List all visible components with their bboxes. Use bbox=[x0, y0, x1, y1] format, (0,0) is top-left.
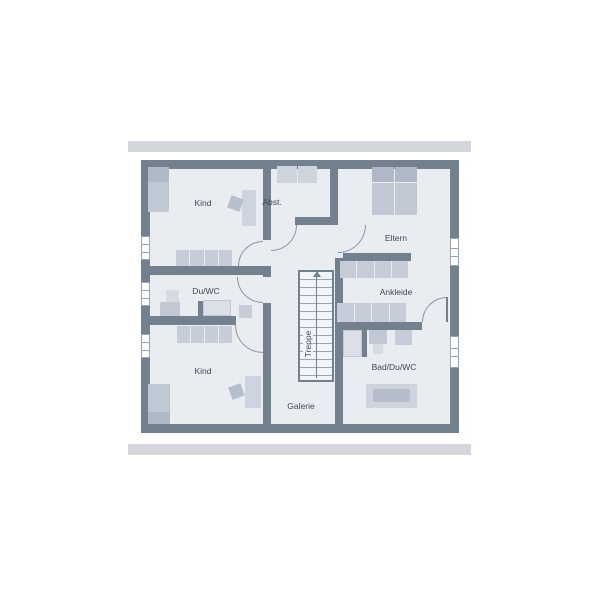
room-label-kind-top: Kind bbox=[194, 198, 211, 208]
bed-mattress bbox=[395, 183, 417, 215]
wall bbox=[335, 258, 343, 424]
wall bbox=[343, 253, 411, 261]
window bbox=[141, 334, 150, 358]
washbasin-pedestal bbox=[166, 290, 179, 302]
window-panes bbox=[142, 290, 149, 299]
bed bbox=[148, 182, 169, 212]
shower-partition bbox=[362, 330, 367, 357]
shelf bbox=[277, 166, 317, 183]
desk bbox=[242, 190, 256, 226]
window bbox=[450, 336, 459, 368]
room-label-ankleide: Ankleide bbox=[380, 287, 413, 297]
room-label-bad-du-wc: Bad/Du/WC bbox=[372, 362, 417, 372]
bathtub-inner bbox=[373, 389, 410, 402]
roof-eave-bottom bbox=[128, 444, 471, 455]
wardrobe-cell bbox=[390, 303, 407, 322]
wall bbox=[263, 303, 271, 316]
shower bbox=[203, 300, 231, 316]
room-label-treppe: Treppe bbox=[303, 330, 313, 359]
double-bed bbox=[372, 167, 417, 215]
wall bbox=[335, 322, 422, 330]
wardrobe-cell bbox=[375, 261, 391, 278]
room-label-eltern: Eltern bbox=[385, 233, 407, 243]
wardrobe-cell bbox=[191, 326, 204, 343]
wardrobe-cell bbox=[219, 326, 232, 343]
wardrobe bbox=[337, 303, 406, 322]
roof-eave-top bbox=[128, 141, 471, 152]
wardrobe bbox=[176, 250, 232, 266]
toilet bbox=[395, 330, 412, 345]
wall bbox=[150, 266, 271, 275]
bed-pillow bbox=[148, 167, 169, 182]
wardrobe bbox=[340, 261, 408, 278]
shelf-cell bbox=[277, 166, 297, 183]
window-panes bbox=[451, 248, 458, 257]
shower bbox=[343, 330, 362, 357]
wardrobe-cell bbox=[176, 250, 189, 266]
bed-pillow bbox=[148, 412, 170, 424]
stair-walk-line bbox=[316, 276, 317, 378]
bed-pillow bbox=[372, 167, 394, 182]
wall bbox=[295, 217, 338, 225]
wardrobe-cell bbox=[340, 261, 356, 278]
wardrobe-cell bbox=[205, 250, 218, 266]
room-label-abstellraum: Abst. bbox=[262, 197, 281, 207]
wall bbox=[150, 316, 236, 325]
wardrobe-cell bbox=[337, 303, 354, 322]
wardrobe-cell bbox=[355, 303, 372, 322]
washbasin bbox=[369, 330, 387, 344]
wall bbox=[263, 266, 271, 277]
wardrobe bbox=[177, 326, 232, 343]
wardrobe-cell bbox=[190, 250, 203, 266]
room-label-du-wc: Du/WC bbox=[192, 286, 219, 296]
stair-direction-arrow bbox=[313, 271, 321, 277]
bed-pillow bbox=[395, 167, 417, 182]
wardrobe-cell bbox=[372, 303, 389, 322]
room-label-kind-bottom: Kind bbox=[194, 366, 211, 376]
bed bbox=[148, 384, 170, 412]
window bbox=[450, 238, 459, 266]
wardrobe-cell bbox=[357, 261, 373, 278]
desk bbox=[245, 376, 261, 408]
window bbox=[141, 236, 150, 260]
wall bbox=[263, 316, 271, 424]
window-panes bbox=[142, 342, 149, 351]
window bbox=[141, 282, 150, 306]
washbasin bbox=[160, 302, 180, 316]
toilet bbox=[239, 305, 252, 318]
bed-mattress bbox=[372, 183, 394, 215]
window-panes bbox=[451, 348, 458, 357]
washbasin-pedestal bbox=[373, 344, 383, 354]
wardrobe-cell bbox=[177, 326, 190, 343]
wardrobe-cell bbox=[392, 261, 408, 278]
room-label-galerie: Galerie bbox=[287, 401, 314, 411]
floor-plan: Kind Abst. Eltern Du/WC Ankleide Kind Tr… bbox=[0, 0, 600, 600]
window-panes bbox=[142, 244, 149, 253]
wardrobe-cell bbox=[219, 250, 232, 266]
wardrobe-cell bbox=[205, 326, 218, 343]
door-leaf-bad bbox=[446, 297, 448, 322]
shelf-cell bbox=[298, 166, 318, 183]
